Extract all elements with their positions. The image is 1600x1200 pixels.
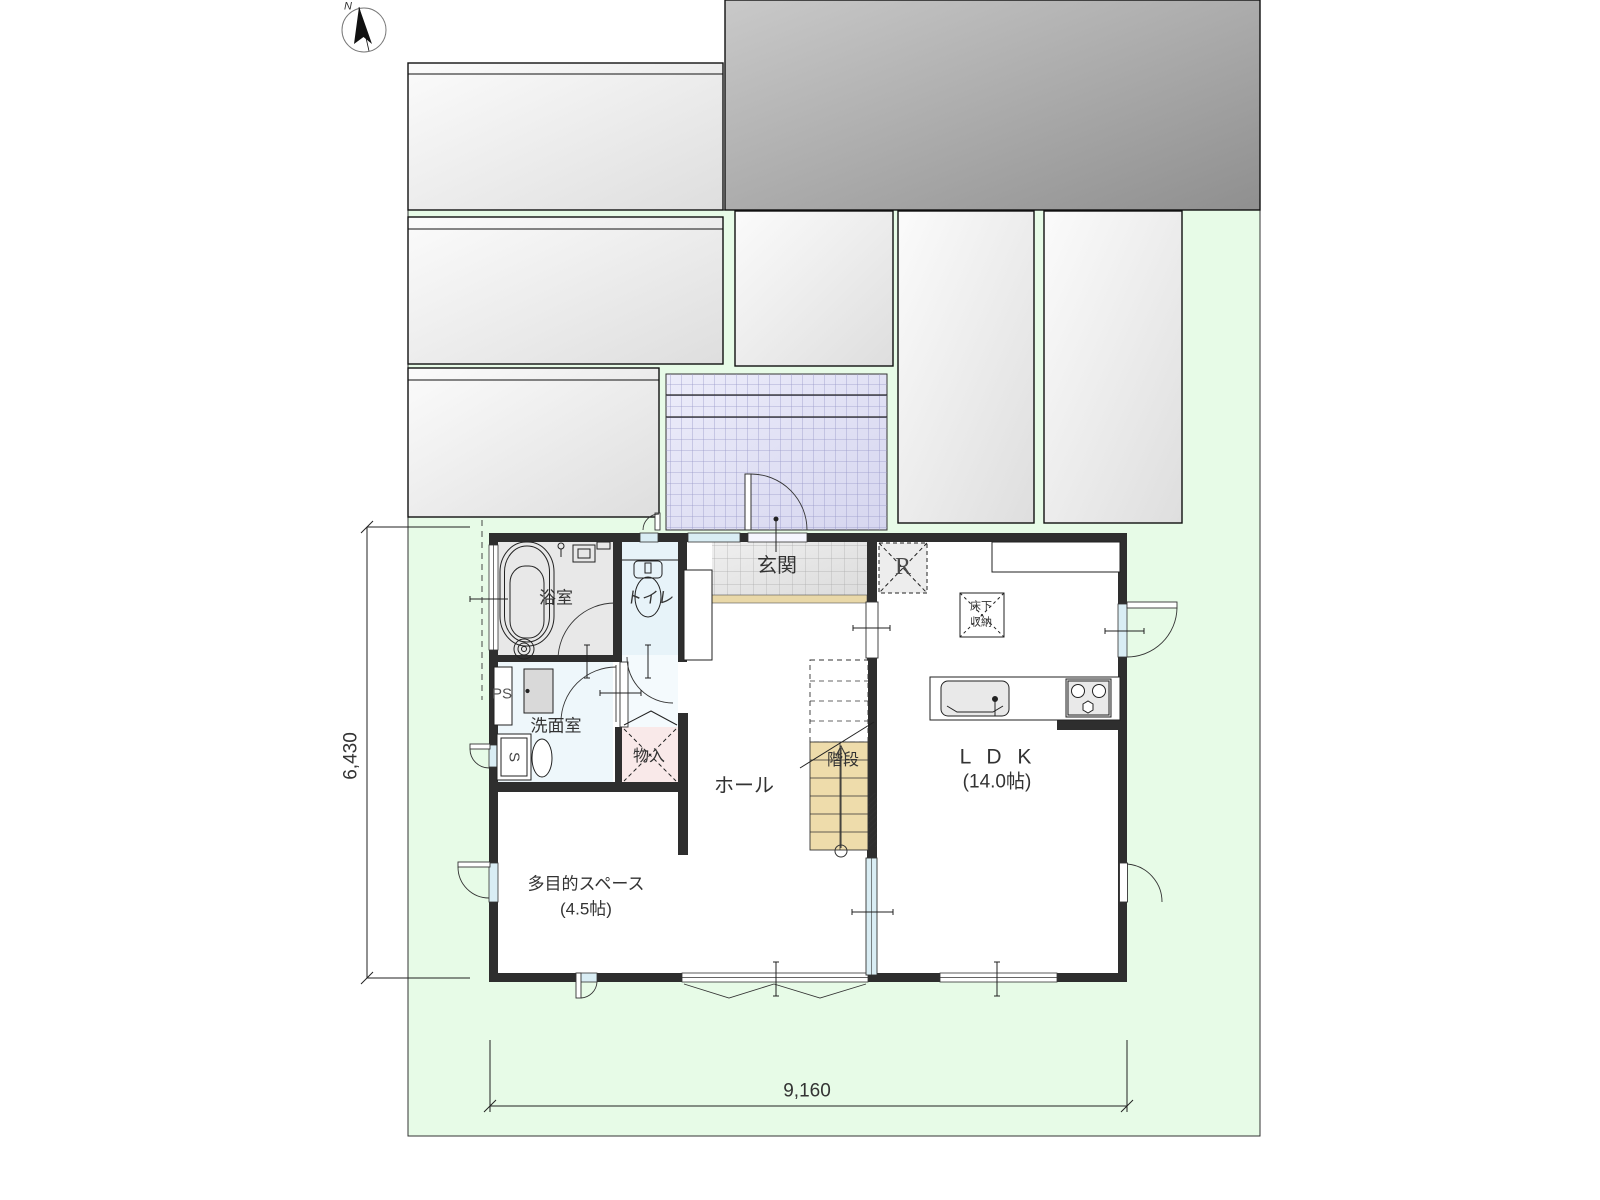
room-label-multipurpose: 多目的スペース: [528, 876, 645, 893]
room-label-entrance: 玄関: [757, 556, 797, 576]
multipurpose-window: [489, 863, 498, 902]
room-label-toilet: トイレ: [625, 591, 675, 607]
underfloor-storage-label-2: 収納: [970, 618, 992, 629]
toilet-window: [640, 533, 658, 542]
floor-plan-drawing: [0, 0, 1600, 1200]
north-label: N: [344, 2, 352, 13]
neighbor-block-dark: [725, 0, 1260, 210]
neighbor-block-row2: [408, 217, 723, 364]
entrance-step: [712, 595, 867, 603]
refrigerator-label: R: [895, 555, 911, 579]
kitchen-back-counter: [992, 542, 1120, 572]
neighbor-block-middle: [735, 211, 893, 366]
neighbor-block-tall-2: [1044, 211, 1182, 523]
neighbor-block-tall-1: [898, 211, 1034, 523]
north-arrow: [342, 7, 386, 52]
hall-ldk-opening: [866, 602, 878, 658]
room-label-washroom: 洗面室: [531, 718, 582, 735]
stair-wall-hatch: [868, 793, 877, 847]
entrance-side-window: [688, 533, 740, 542]
room-label-closet: 物入: [633, 749, 665, 765]
corridor-floor: [622, 655, 678, 727]
washroom-opening: [620, 662, 628, 727]
dimension-height-label: 6,430: [342, 732, 361, 780]
shoe-cabinet: [684, 570, 712, 660]
room-label-ldk: L D K: [960, 747, 1037, 768]
room-label-bathroom: 浴室: [539, 590, 573, 607]
entrance-porch: [666, 374, 887, 530]
room-label-multipurpose-size: (4.5帖): [560, 901, 612, 918]
room-label-hall: ホール: [714, 776, 774, 796]
room-label-stairs: 階段: [827, 753, 859, 769]
dimension-width-label: 9,160: [783, 1082, 831, 1101]
entrance-opening: [748, 533, 807, 542]
neighbor-block-row3: [408, 368, 659, 517]
kitchen-sink: [941, 681, 1009, 716]
underfloor-storage-label-1: 床下: [970, 602, 992, 613]
room-label-ldk-size: (14.0帖): [963, 773, 1032, 792]
sink-label: S: [507, 752, 522, 762]
neighbor-block-row1: [408, 63, 723, 210]
pipe-space-label: PS: [492, 687, 512, 702]
entrance-door-leaf: [745, 474, 751, 530]
floor-plan-page: N 玄関 浴室 トイレ 洗面室 PS S 物入 ホール 階段 R 床下 収納 L…: [0, 0, 1600, 1200]
